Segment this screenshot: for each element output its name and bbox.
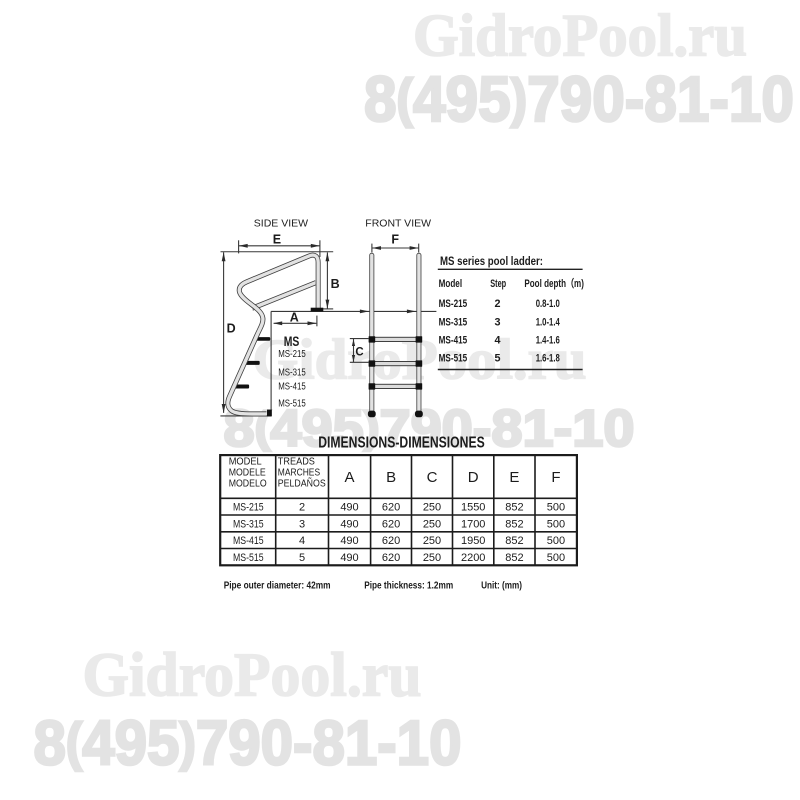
svg-text:Pool depth（m): Pool depth（m) (524, 277, 584, 290)
svg-text:MS-515: MS-515 (439, 353, 468, 365)
svg-text:8(495)790-81-10: 8(495)790-81-10 (364, 63, 794, 135)
svg-text:250: 250 (423, 518, 441, 530)
svg-text:490: 490 (340, 535, 358, 547)
svg-text:500: 500 (547, 535, 565, 547)
svg-text:620: 620 (382, 502, 400, 514)
svg-text:GidroPool.ru: GidroPool.ru (83, 642, 422, 710)
svg-text:1.4-1.6: 1.4-1.6 (536, 334, 560, 346)
svg-text:620: 620 (382, 518, 400, 530)
svg-text:GidroPool.ru: GidroPool.ru (413, 3, 747, 69)
svg-text:500: 500 (547, 518, 565, 530)
svg-text:F: F (551, 469, 560, 486)
svg-text:C: C (355, 346, 363, 358)
svg-text:2: 2 (299, 502, 305, 514)
svg-text:PELDAÑOS: PELDAÑOS (278, 477, 326, 490)
svg-text:MS-515: MS-515 (278, 398, 306, 409)
svg-text:3: 3 (299, 518, 305, 530)
svg-text:FRONT VIEW: FRONT VIEW (365, 218, 431, 230)
svg-text:2: 2 (495, 298, 501, 310)
svg-text:8(495)790-81-10: 8(495)790-81-10 (34, 709, 462, 779)
svg-text:1.6-1.8: 1.6-1.8 (536, 353, 560, 365)
svg-text:1950: 1950 (461, 535, 485, 547)
svg-text:250: 250 (423, 535, 441, 547)
svg-text:SIDE VIEW: SIDE VIEW (254, 218, 308, 230)
svg-text:B: B (331, 277, 340, 291)
svg-text:3: 3 (495, 316, 501, 328)
svg-text:620: 620 (382, 535, 400, 547)
svg-text:D: D (468, 469, 479, 486)
svg-text:490: 490 (340, 518, 358, 530)
svg-text:MS-315: MS-315 (233, 518, 264, 530)
svg-text:E: E (509, 469, 519, 486)
svg-text:TREADS: TREADS (278, 456, 315, 467)
svg-text:MS-215: MS-215 (439, 298, 468, 310)
svg-text:MS-415: MS-415 (233, 535, 264, 547)
svg-text:5: 5 (495, 353, 501, 365)
svg-text:1.0-1.4: 1.0-1.4 (536, 316, 560, 328)
svg-text:500: 500 (547, 502, 565, 514)
svg-text:A: A (344, 469, 354, 486)
svg-text:852: 852 (505, 552, 523, 564)
svg-text:500: 500 (547, 552, 565, 564)
svg-text:5: 5 (299, 552, 305, 564)
svg-text:250: 250 (423, 502, 441, 514)
svg-text:MS series pool ladder:: MS series pool ladder: (440, 254, 543, 268)
svg-text:4: 4 (495, 334, 501, 346)
svg-text:MARCHES: MARCHES (278, 467, 321, 478)
svg-text:MS-515: MS-515 (233, 552, 264, 564)
svg-text:E: E (273, 232, 281, 246)
svg-text:Step: Step (490, 278, 506, 290)
svg-text:250: 250 (423, 552, 441, 564)
svg-text:MS-315: MS-315 (439, 316, 468, 328)
svg-text:MS-215: MS-215 (278, 349, 306, 360)
svg-text:4: 4 (299, 535, 305, 547)
svg-text:MODELO: MODELO (229, 479, 267, 490)
svg-text:A: A (290, 310, 299, 324)
svg-text:MS-215: MS-215 (233, 502, 264, 514)
svg-text:620: 620 (382, 552, 400, 564)
svg-text:DIMENSIONS-DIMENSIONES: DIMENSIONS-DIMENSIONES (318, 434, 485, 451)
svg-text:MODELE: MODELE (229, 467, 266, 478)
svg-text:MS-315: MS-315 (278, 368, 306, 379)
svg-text:2200: 2200 (461, 552, 485, 564)
svg-text:Model: Model (439, 278, 463, 290)
svg-text:852: 852 (505, 502, 523, 514)
svg-text:Pipe outer diameter: 42mm: Pipe outer diameter: 42mm (224, 581, 331, 592)
svg-text:MS: MS (284, 334, 300, 349)
svg-text:490: 490 (340, 552, 358, 564)
svg-text:490: 490 (340, 502, 358, 514)
svg-text:C: C (427, 469, 438, 486)
svg-text:MODEL: MODEL (229, 456, 262, 467)
svg-text:MS-415: MS-415 (439, 334, 468, 346)
svg-text:852: 852 (505, 535, 523, 547)
svg-text:1700: 1700 (461, 518, 485, 530)
svg-text:0.8-1.0: 0.8-1.0 (536, 298, 560, 310)
svg-text:852: 852 (505, 518, 523, 530)
svg-text:F: F (391, 232, 399, 246)
svg-text:D: D (227, 321, 236, 335)
svg-text:Unit: (mm): Unit: (mm) (481, 581, 522, 592)
svg-text:Pipe thickness: 1.2mm: Pipe thickness: 1.2mm (364, 581, 453, 592)
svg-text:1550: 1550 (461, 502, 485, 514)
svg-text:B: B (386, 469, 396, 486)
svg-text:MS-415: MS-415 (278, 381, 306, 392)
